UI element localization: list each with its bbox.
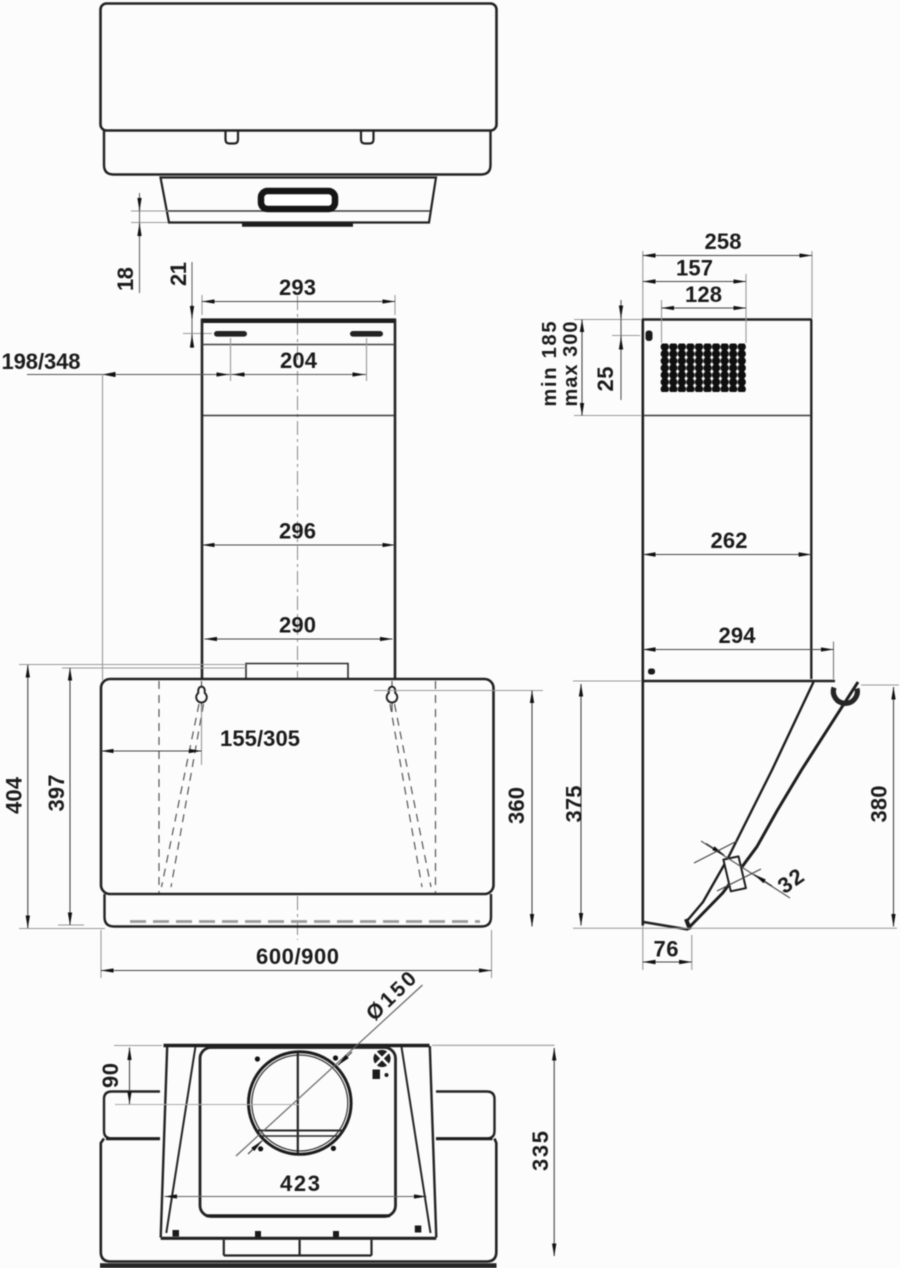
svg-text:155/305: 155/305	[220, 726, 300, 751]
svg-text:128: 128	[685, 282, 722, 307]
svg-text:293: 293	[279, 275, 316, 300]
svg-text:157: 157	[676, 256, 713, 281]
svg-text:375: 375	[562, 786, 587, 823]
svg-text:600/900: 600/900	[256, 944, 339, 969]
svg-text:76: 76	[654, 937, 679, 962]
svg-text:198/348: 198/348	[2, 349, 81, 374]
svg-text:204: 204	[280, 348, 318, 373]
svg-text:max 300: max 300	[560, 322, 582, 407]
svg-text:380: 380	[867, 786, 892, 823]
svg-text:21: 21	[166, 262, 191, 286]
svg-text:262: 262	[711, 528, 748, 553]
svg-text:296: 296	[279, 519, 316, 544]
svg-text:32: 32	[773, 863, 809, 898]
svg-text:90: 90	[98, 1063, 123, 1088]
svg-text:360: 360	[504, 787, 529, 824]
svg-text:Ø150: Ø150	[362, 967, 421, 1025]
svg-text:423: 423	[280, 1171, 320, 1196]
svg-text:397: 397	[44, 775, 69, 812]
svg-text:290: 290	[279, 613, 316, 638]
svg-text:335: 335	[528, 1131, 553, 1171]
svg-text:294: 294	[719, 623, 757, 648]
svg-text:258: 258	[705, 229, 742, 254]
svg-text:18: 18	[113, 267, 138, 291]
svg-text:404: 404	[2, 776, 27, 814]
svg-text:min 185: min 185	[539, 322, 561, 407]
svg-text:25: 25	[593, 367, 618, 392]
